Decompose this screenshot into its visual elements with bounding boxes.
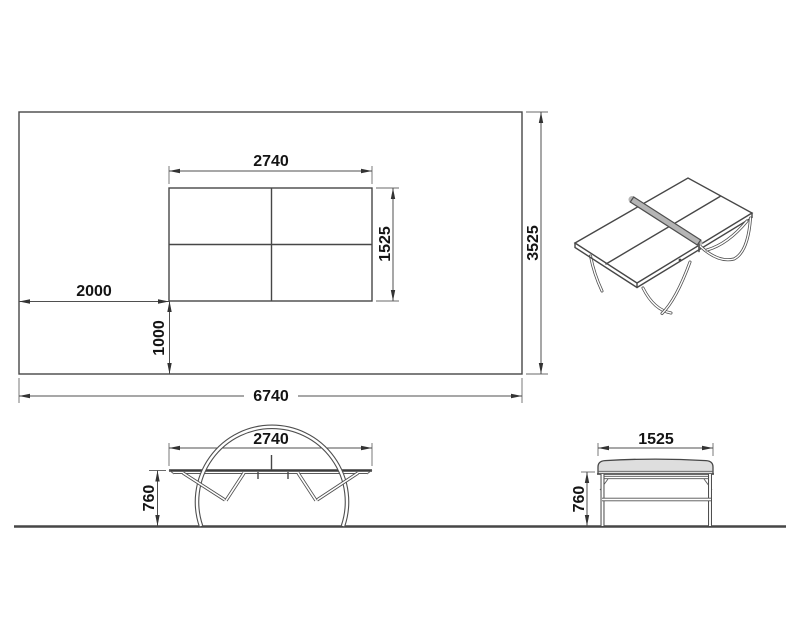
strut-left-outer-inner bbox=[183, 473, 225, 500]
dim-label-height-front: 760 bbox=[141, 485, 158, 512]
dim-label-table-width-plan: 1525 bbox=[377, 226, 394, 262]
strut-right-outer-inner bbox=[317, 473, 358, 500]
dim-label-clearance-left: 2000 bbox=[76, 283, 112, 300]
dim-table-width-side: 1525 bbox=[598, 431, 713, 456]
dim-label-table-length-plan: 2740 bbox=[253, 153, 289, 170]
dim-height-side: 760 bbox=[571, 472, 595, 526]
technical-drawing: 2740 1525 2000 1000 3525 bbox=[0, 0, 800, 640]
dim-room-width: 3525 bbox=[525, 112, 548, 374]
dim-clearance-left: 2000 bbox=[19, 283, 169, 302]
front-elevation-view: 2740 760 bbox=[141, 427, 372, 526]
tabletop-side bbox=[598, 459, 713, 474]
side-elevation-view: 1525 760 bbox=[571, 431, 714, 526]
dim-room-length: 6740 bbox=[19, 378, 522, 405]
dim-label-room-length: 6740 bbox=[253, 388, 289, 405]
dim-label-clearance-bottom: 1000 bbox=[151, 320, 168, 356]
dim-height-front: 760 bbox=[141, 471, 166, 527]
dim-label-room-width: 3525 bbox=[525, 225, 542, 261]
dim-table-length-plan: 2740 bbox=[169, 153, 372, 184]
dim-label-table-width-side: 1525 bbox=[638, 431, 674, 448]
dim-clearance-bottom: 1000 bbox=[151, 301, 170, 374]
strut-left-inner-inner bbox=[226, 473, 244, 501]
dim-label-table-length-front: 2740 bbox=[253, 431, 289, 448]
dim-table-length-front: 2740 bbox=[169, 431, 372, 466]
isometric-view bbox=[575, 178, 752, 314]
room-outline bbox=[19, 112, 522, 374]
strut-right-inner-inner bbox=[298, 473, 316, 501]
dim-label-height-side: 760 bbox=[571, 486, 588, 513]
iso-joint-dot bbox=[679, 259, 682, 262]
drawing-canvas: 2740 1525 2000 1000 3525 bbox=[0, 0, 800, 640]
plan-view: 2740 1525 2000 1000 3525 bbox=[19, 112, 548, 405]
dim-table-width-plan: 1525 bbox=[376, 188, 399, 301]
